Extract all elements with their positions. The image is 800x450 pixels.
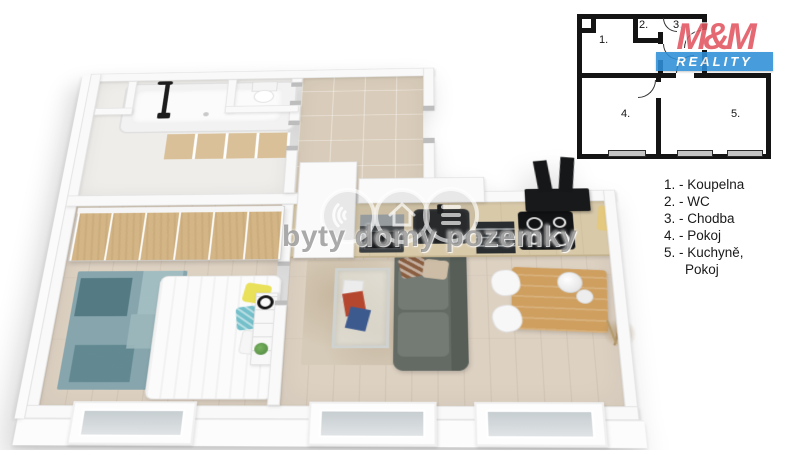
door-jamb (423, 138, 435, 143)
wall (656, 78, 661, 82)
legend-line-4: 4. - Pokoj (664, 227, 744, 244)
brand-tagline: REALITY (656, 52, 773, 71)
range-hood-chimney (558, 157, 574, 192)
brand-name: M&M (654, 20, 775, 54)
door-jamb (286, 146, 298, 151)
range-hood (525, 188, 591, 211)
wall (656, 98, 661, 159)
bath-wood-tiles (164, 132, 291, 159)
window-glass (78, 409, 185, 437)
wall (94, 108, 133, 116)
window-2d (677, 150, 713, 157)
room-label-5: 5. (731, 108, 740, 120)
room-label-1: 1. (599, 34, 608, 46)
legend-line-3: 3. - Chodba (664, 210, 744, 227)
room-label-4: 4. (621, 108, 630, 120)
wardrobe (68, 206, 285, 262)
door-jamb (290, 101, 301, 105)
window-glass (319, 409, 426, 437)
legend-line-1: 1. - Koupelna (664, 176, 744, 193)
window-glass (486, 410, 596, 439)
shower-head-icon (157, 81, 173, 85)
door-jamb (277, 262, 289, 266)
legend-line-2: 2. - WC (664, 193, 744, 210)
window-2d (608, 150, 646, 157)
wall (577, 28, 596, 33)
wall (633, 14, 638, 40)
shower-handle-icon (157, 113, 171, 119)
door-jamb (275, 300, 288, 304)
vase-small (576, 289, 594, 303)
window-2d (727, 150, 763, 157)
watermark-text: byty domy pozemky (282, 220, 577, 254)
sofa-pillow-beige (422, 259, 450, 281)
wall (174, 405, 327, 419)
door-gap (676, 73, 694, 78)
wall (224, 105, 299, 113)
legend-line-5b: Pokoj (685, 261, 744, 278)
door-jamb (423, 106, 434, 111)
room-legend: 1. - Koupelna 2. - WC 3. - Chodba 4. - P… (664, 176, 744, 278)
wall (423, 68, 434, 110)
door-jamb (291, 82, 302, 86)
sofa-cushion (397, 312, 449, 356)
door-jamb (288, 121, 300, 126)
brand-logo: M&M REALITY (654, 20, 775, 72)
sofa-backrest (450, 250, 469, 371)
legend-line-5: 5. - Kuchyně, (664, 244, 744, 261)
room-label-2: 2. (639, 19, 648, 31)
floorplan-image: byty domy pozemky 1. 2. 3. 4. 5. (0, 0, 800, 450)
schematic-lower-block (577, 73, 771, 159)
range-hood-chimney (533, 160, 553, 192)
